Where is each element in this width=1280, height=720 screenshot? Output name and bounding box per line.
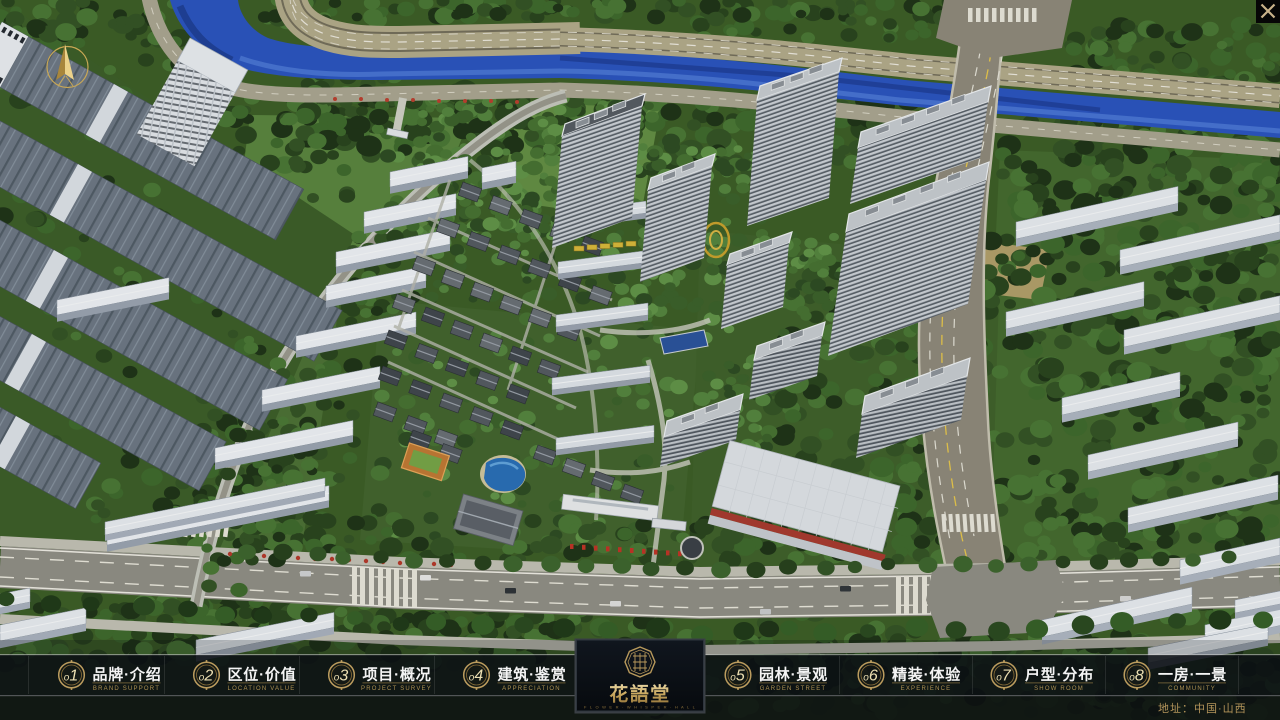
svg-text:BRAND SUPPORT: BRAND SUPPORT	[93, 686, 160, 692]
svg-text:建筑·鉴赏: 建筑·鉴赏	[498, 666, 567, 684]
svg-text:花語堂: 花語堂	[609, 683, 671, 706]
svg-text:一房·一景: 一房·一景	[1158, 666, 1227, 684]
svg-text:园林·景观: 园林·景观	[759, 666, 828, 684]
svg-text:区位·价值: 区位·价值	[228, 666, 297, 684]
svg-text:地址：中国·山西: 地址：中国·山西	[1158, 701, 1247, 715]
svg-text:EXPERIENCE: EXPERIENCE	[901, 686, 952, 692]
svg-text:COMMUNITY: COMMUNITY	[1168, 686, 1216, 692]
svg-text:F L O W E R · W H I S P E R ·: F L O W E R · W H I S P E R · H A L L	[584, 705, 696, 710]
svg-text:APPRECIATION: APPRECIATION	[502, 686, 561, 692]
svg-text:品牌·介绍: 品牌·介绍	[93, 666, 162, 684]
svg-text:SHOW ROOM: SHOW ROOM	[1034, 686, 1084, 692]
svg-text:GARDEN STREET: GARDEN STREET	[760, 686, 827, 692]
svg-text:PROJECT SURVEY: PROJECT SURVEY	[361, 686, 432, 692]
svg-text:精装·体验: 精装·体验	[892, 666, 961, 684]
svg-text:LOCATION VALUE: LOCATION VALUE	[228, 686, 296, 692]
svg-text:户型·分布: 户型·分布	[1025, 666, 1094, 684]
svg-text:项目·概况: 项目·概况	[363, 666, 432, 684]
